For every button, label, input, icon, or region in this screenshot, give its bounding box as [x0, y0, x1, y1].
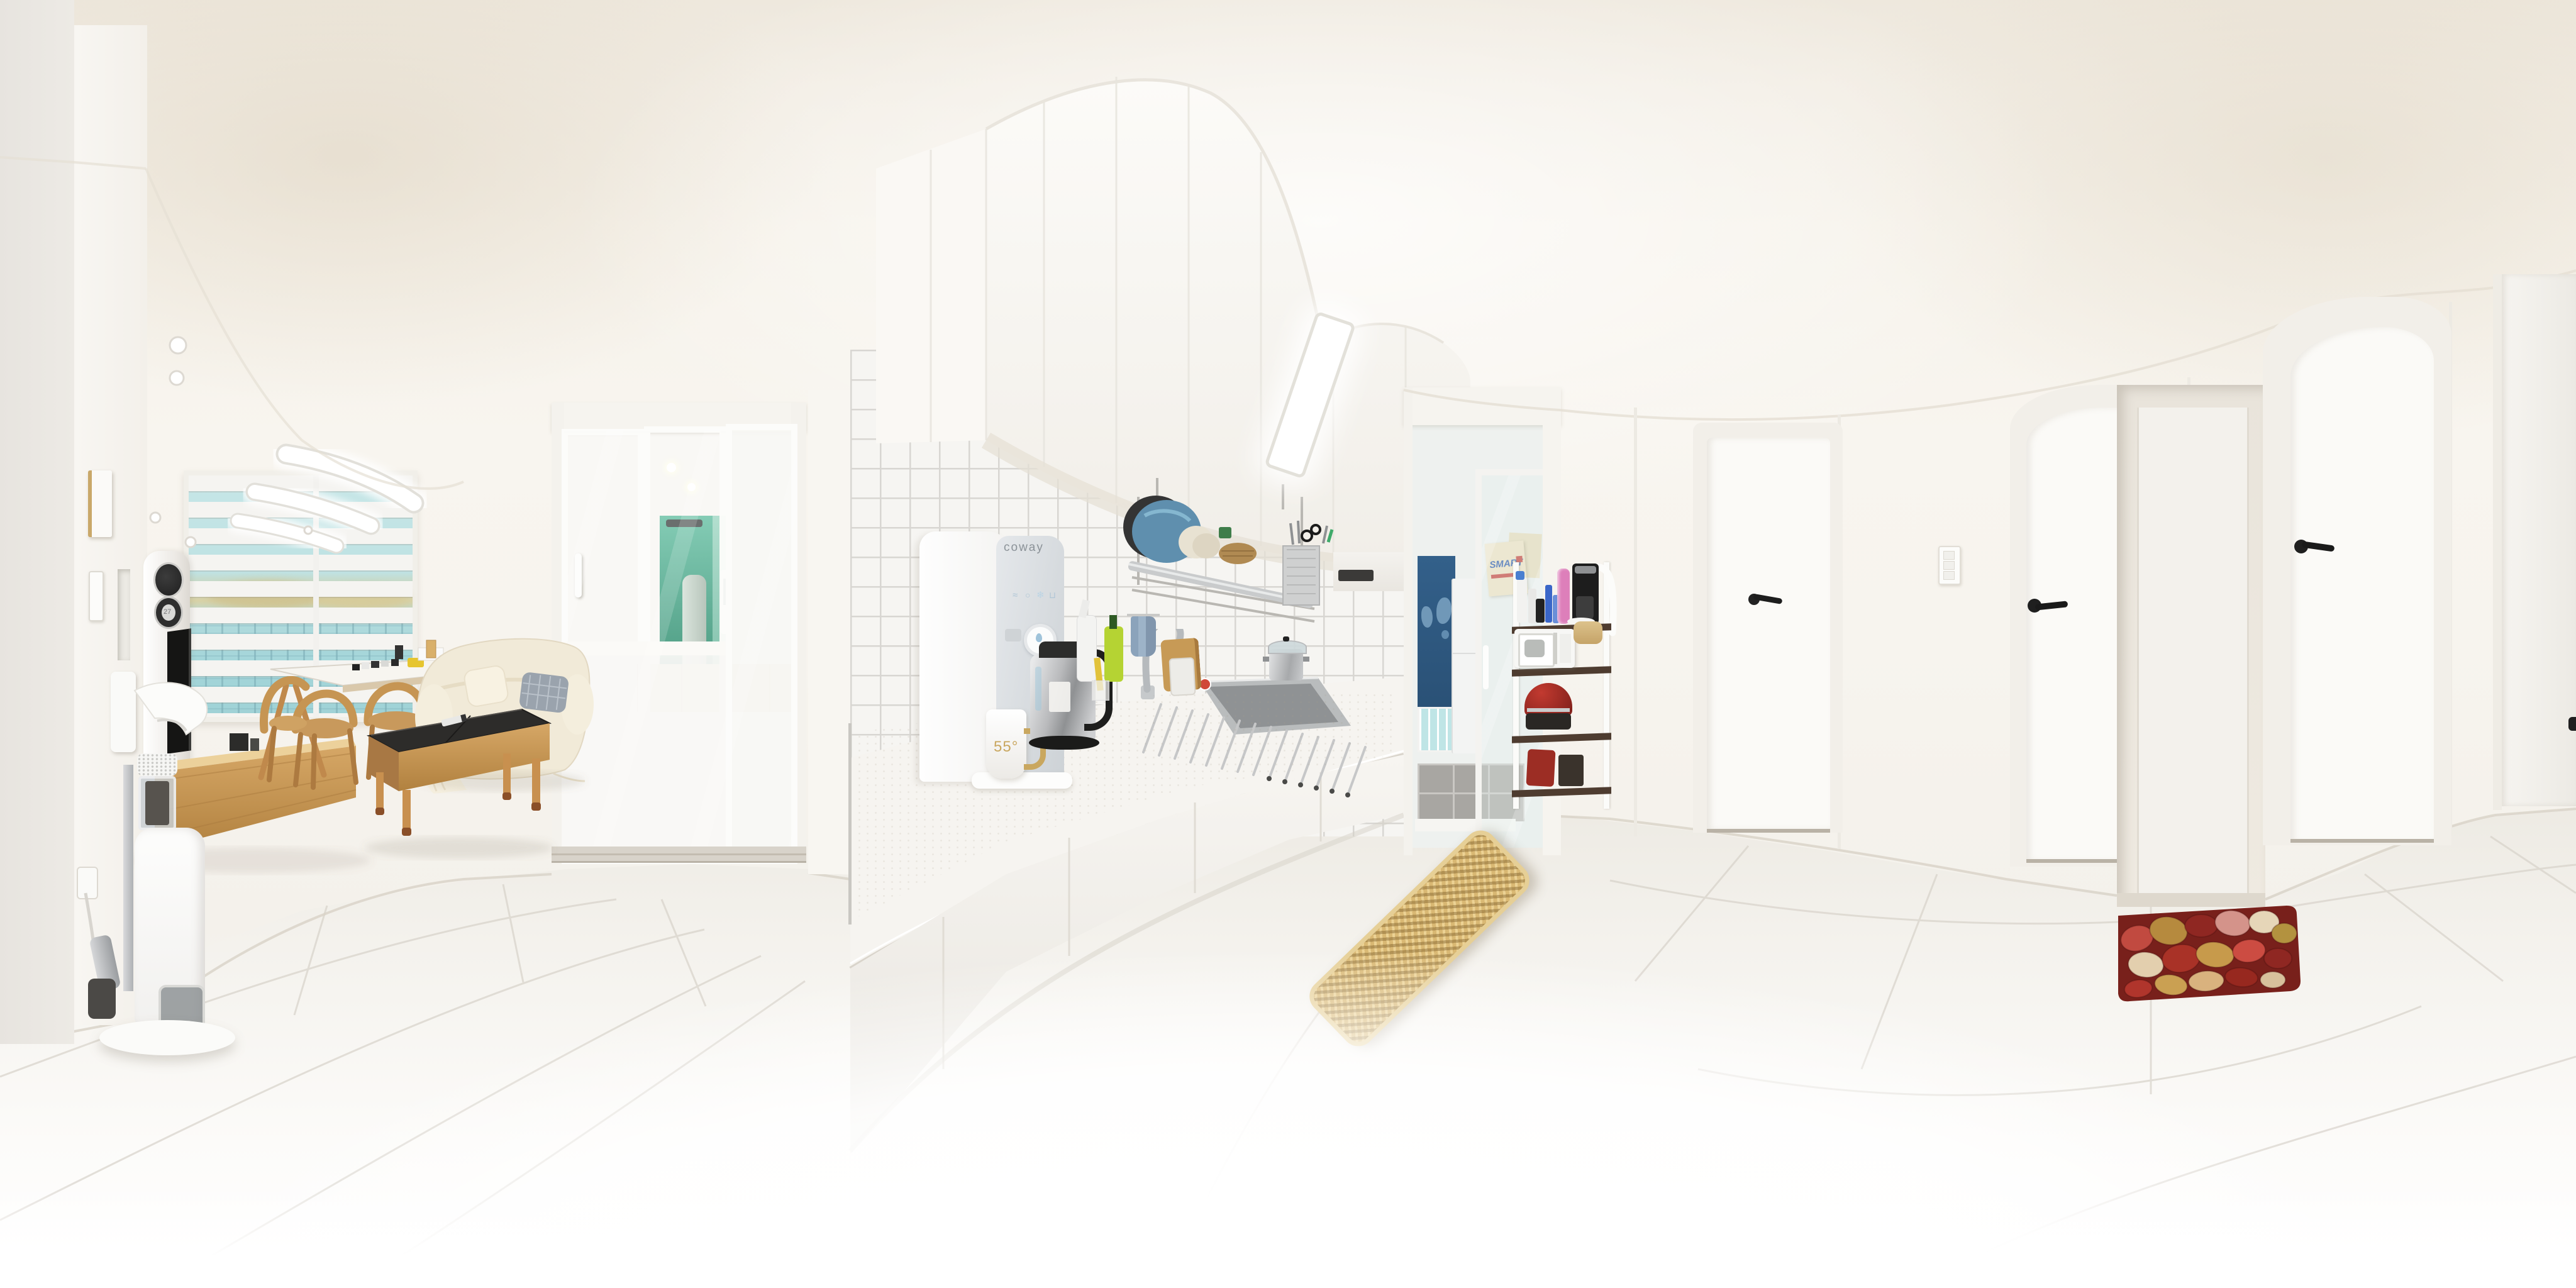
purifier-cold-icon: ❄ — [1036, 589, 1045, 601]
purifier-hot-icon: ≈ — [1013, 590, 1018, 601]
coffee-maker-cap — [1575, 566, 1596, 574]
cooker-band — [1527, 708, 1570, 712]
microwave — [1514, 629, 1575, 668]
red-pouch — [1526, 749, 1556, 787]
range-hood — [1333, 552, 1404, 591]
pot-handle-l — [1263, 657, 1269, 662]
hood-vent-slot — [1338, 570, 1374, 581]
map-blob-1 — [1421, 606, 1433, 628]
vacuum-accessory-cup — [88, 979, 116, 1019]
rice-cooker — [1524, 683, 1572, 731]
counter-end-trim — [848, 723, 852, 924]
vacuum-base — [99, 1020, 235, 1055]
microwave-window — [1518, 633, 1555, 667]
map-blob-2 — [1436, 597, 1452, 624]
mug-temperature-label: 55° — [994, 738, 1018, 756]
purifier-pure-icon: ○ — [1025, 590, 1030, 600]
cutting-board-small — [1169, 657, 1196, 696]
world-map-roller-blind — [1418, 556, 1455, 707]
kettle-base — [1029, 736, 1099, 750]
door-c-bottom-shadow — [2290, 839, 2434, 843]
pot-lid — [1268, 640, 1307, 654]
mug: 55° — [986, 709, 1026, 779]
door-frame-d — [2493, 274, 2502, 810]
microwave-glass — [1524, 640, 1545, 657]
soap-pump — [1109, 615, 1117, 629]
coffee-maker — [1572, 563, 1599, 624]
switch-rocker-3 — [1943, 571, 1955, 580]
gray-check-pillow — [519, 672, 570, 714]
kitchen-counter — [818, 629, 1446, 1195]
switch-rocker-1 — [1943, 551, 1955, 560]
purifier-drip-tray — [972, 772, 1072, 789]
spray-trigger — [1516, 571, 1524, 580]
vacuum-motor-cap — [137, 753, 177, 776]
hanging-towel — [1131, 616, 1156, 657]
pink-tumbler — [1557, 569, 1570, 624]
brush-cup — [1092, 680, 1109, 701]
glass-door-handle — [1483, 645, 1489, 689]
switch-rocker-2 — [1943, 561, 1955, 570]
button-droplet — [1036, 633, 1042, 642]
blue-bottle-1 — [1545, 585, 1552, 623]
stock-pot — [1269, 649, 1303, 680]
microwave-handle — [1553, 633, 1557, 664]
appliance-storage-rack — [1512, 560, 1613, 811]
map-blob-3 — [1441, 630, 1449, 639]
pot-knob — [1283, 636, 1289, 641]
spray-bottle-white — [1517, 577, 1527, 623]
door-d — [2502, 274, 2576, 806]
bin-inner — [145, 781, 169, 825]
door-a-bottom-shadow — [1707, 829, 1830, 833]
vacuum-dust-bin — [138, 776, 176, 830]
hallway-light-switch — [1938, 546, 1961, 585]
cordless-vacuum — [75, 660, 264, 1069]
kettle-water-window — [1035, 667, 1041, 711]
cream-whipper — [1077, 615, 1097, 682]
purifier-cup-icon: ⊔ — [1049, 590, 1056, 601]
balcony-window — [1418, 707, 1454, 752]
microwave-panel — [1560, 634, 1571, 663]
door-a — [1707, 438, 1830, 830]
cooker-base — [1526, 713, 1571, 730]
apartment-panorama: 27 — [0, 0, 2576, 1288]
door-c — [2290, 327, 2434, 843]
paper-towel-roll — [1574, 621, 1602, 644]
black-jar — [1536, 599, 1545, 623]
coffee-carafe — [1576, 596, 1594, 620]
dish-soap-bottle — [1104, 626, 1123, 682]
kettle-label — [1049, 682, 1070, 712]
pot-handle-r — [1303, 657, 1309, 662]
entrance-inner-door — [2137, 408, 2249, 893]
pebble-doormat — [2113, 901, 2308, 1011]
hall-corner-trim-1 — [1634, 408, 1637, 836]
dark-box — [1558, 755, 1584, 786]
door-d-handle — [2568, 717, 2576, 731]
purifier-brand-label: coway — [1004, 541, 1044, 555]
purifier-spout — [1005, 629, 1021, 641]
